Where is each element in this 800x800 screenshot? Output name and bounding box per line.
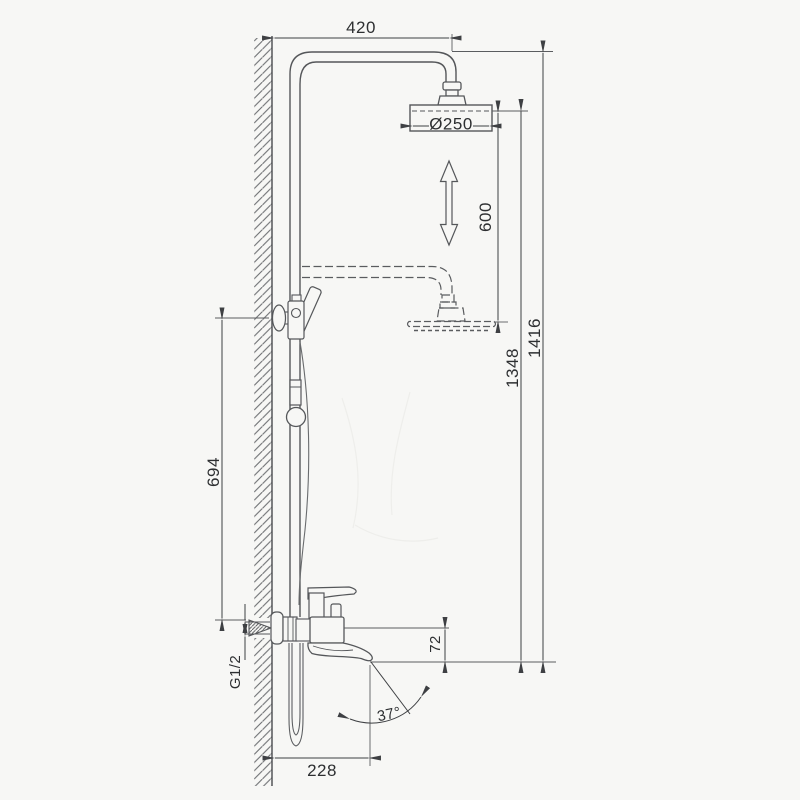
wall-escutcheon <box>271 612 283 644</box>
dim-label-connection-thread: G1/2 <box>227 655 244 689</box>
dim-label-spout-drop: 72 <box>427 635 444 653</box>
junction-block <box>296 619 311 641</box>
wall-hatching <box>254 38 272 786</box>
rail-ball-joint <box>287 408 306 427</box>
connection-nut <box>283 617 297 641</box>
pivot-knob <box>292 309 301 318</box>
wall <box>254 36 272 786</box>
dim-label-head-diameter: Ø250 <box>429 115 473 134</box>
paper-background <box>0 0 800 800</box>
dim-label-arm-reach: 420 <box>346 18 376 37</box>
slider-block <box>288 301 304 339</box>
dim-label-hand-shower-height: 694 <box>204 457 223 487</box>
rail-collar <box>290 380 301 405</box>
dim-label-total-height: 1416 <box>525 318 544 358</box>
technical-drawing-canvas: Ø250 <box>0 0 800 800</box>
handle-neck <box>309 593 324 618</box>
dim-label-head-height: 1348 <box>503 348 522 388</box>
drawing-stage: Ø250 <box>0 0 800 800</box>
dim-label-height-adjustment: 600 <box>476 202 495 232</box>
mixer-body <box>310 617 344 643</box>
overhead-shower-head: Ø250 <box>410 105 492 134</box>
wall-bracket-flange <box>273 305 286 331</box>
dim-label-spout-reach: 228 <box>307 761 337 780</box>
